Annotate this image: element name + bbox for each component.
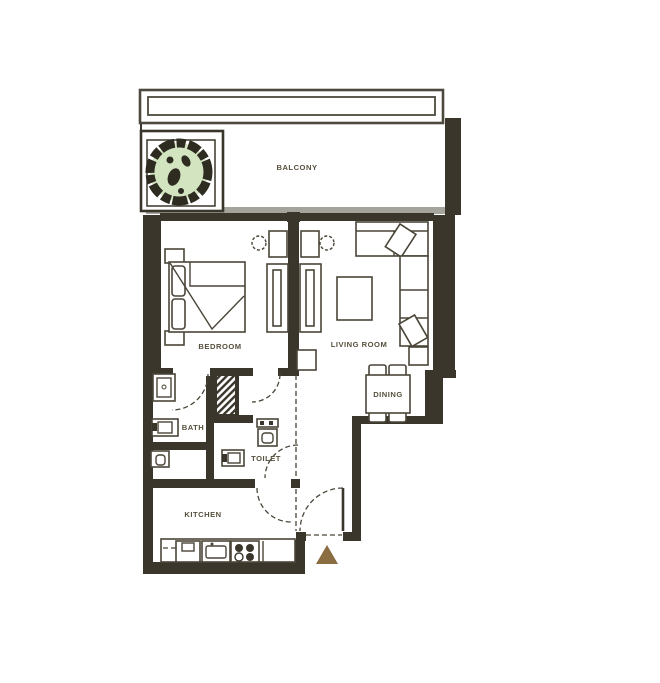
ac-unit [269, 231, 287, 257]
toilet-label: TOILET [251, 454, 281, 463]
bedroom-furniture [165, 231, 288, 345]
coffee-table [337, 277, 372, 320]
bath-door-swing [172, 374, 208, 410]
bedroom-label: BEDROOM [198, 342, 241, 351]
stove-burner [235, 544, 243, 552]
wc-tank-knob [260, 421, 264, 425]
kitchen-label: KITCHEN [184, 510, 221, 519]
planter-tree [141, 131, 223, 211]
wardrobe-door [273, 270, 281, 326]
bedroom-door-swing [252, 374, 280, 402]
floor-plan: BALCONY BEDROOM LIVING ROOM DINING BATH … [0, 0, 660, 683]
low-cabinet [297, 350, 316, 370]
entry-direction-arrow [316, 545, 338, 564]
kitchen-door-swing [257, 488, 291, 522]
tv-cabinet-door [306, 270, 314, 326]
service-shaft-hatch [217, 376, 235, 414]
ac-unit [301, 231, 319, 257]
nightstand [165, 249, 184, 263]
floor-plan-drawing: BALCONY BEDROOM LIVING ROOM DINING BATH … [0, 0, 660, 683]
kitchen-fixtures [161, 539, 295, 562]
dining-label: DINING [373, 390, 403, 399]
ac-unit-icon [252, 236, 266, 250]
toilet-sink-tap [222, 454, 227, 462]
side-table [409, 347, 428, 365]
bath-fixtures [151, 374, 178, 467]
kitchen-sink-tap [211, 543, 214, 546]
ac-unit-icon [320, 236, 334, 250]
bath-sink-tap [152, 423, 157, 431]
tree-foliage-blob [178, 188, 184, 194]
tree-foliage-blob [167, 157, 174, 164]
entrance-door-swing [300, 488, 343, 531]
living-room-label: LIVING ROOM [331, 340, 388, 349]
stove-burner [246, 544, 254, 552]
balcony-railing-inner [148, 97, 435, 115]
balcony-label: BALCONY [276, 163, 317, 172]
bath-label: BATH [182, 423, 205, 432]
balcony-railing-outer [140, 90, 443, 123]
balcony [140, 90, 457, 214]
stove-burner [246, 553, 254, 561]
nightstand [165, 331, 184, 345]
pillow [172, 299, 185, 329]
wc-tank-knob [269, 421, 273, 425]
